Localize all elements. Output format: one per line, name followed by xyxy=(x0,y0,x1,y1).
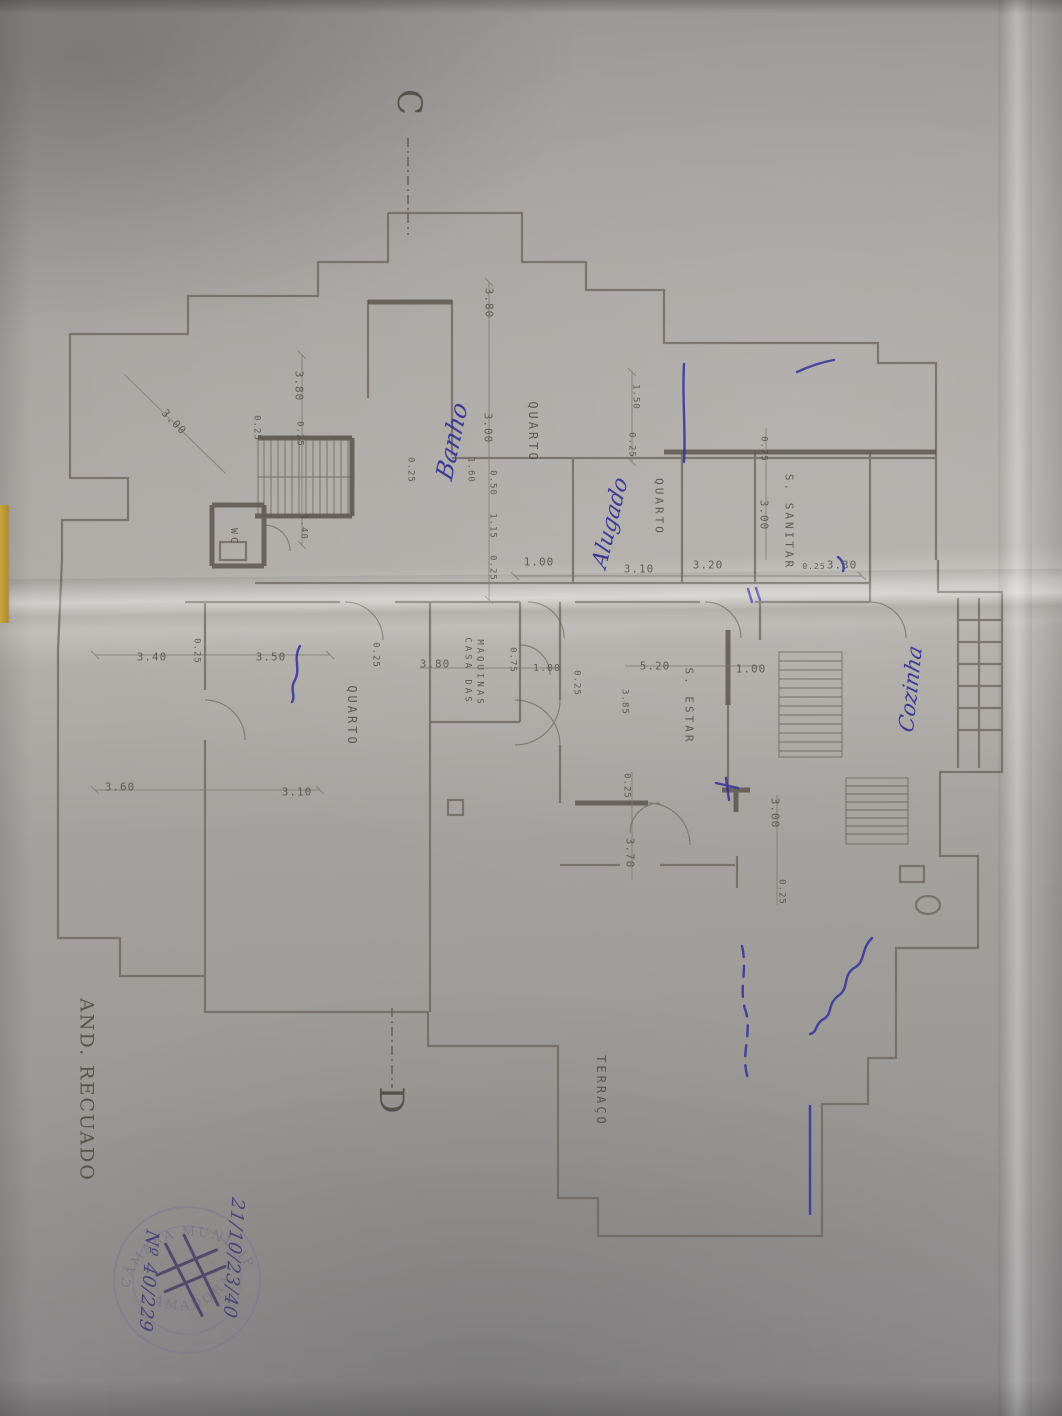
room-label-terraco: TERRAÇO xyxy=(595,1055,607,1127)
dim-0-75-b: 0.75 xyxy=(508,647,517,673)
undersheet-table xyxy=(22,1288,130,1416)
room-label-estar: S. ESTAR xyxy=(684,668,695,745)
dim-5-20: 5.20 xyxy=(640,661,671,672)
walls-thin xyxy=(58,213,1002,1236)
dim-1-50: 1.50 xyxy=(631,384,640,410)
room-label-maquinas: MÁQUINAS xyxy=(475,639,484,706)
room-label-quarto-2: QUARTO xyxy=(654,478,665,536)
ink-scribble-illegible xyxy=(810,938,872,1034)
dim-3-10-b: 3.10 xyxy=(282,787,313,798)
dim-3-00-a: 3.00 xyxy=(483,413,494,444)
ink-scribble-small xyxy=(292,646,300,702)
dim-1-60: 1.60 xyxy=(466,457,475,483)
dim-0-25-c: 0.25 xyxy=(406,457,415,483)
dim-0-25-i: 0.25 xyxy=(572,670,581,696)
municipal-stamp: CÂMARA MUNICIPAL AMADORA xyxy=(99,1192,276,1369)
dim-0-25-h: 0.25 xyxy=(371,642,380,668)
dim-3-85: 3.85 xyxy=(620,689,629,715)
floor-note: AND. RECUADO xyxy=(77,998,96,1182)
room-label-wc: WC xyxy=(228,528,238,546)
ink-stroke-wall xyxy=(683,364,684,462)
section-line-cd xyxy=(392,138,408,1088)
dim-1-00-c: 1.00 xyxy=(736,664,767,675)
room-label-quarto-1: QUARTO xyxy=(527,401,539,462)
dim-3-10-a: 3.10 xyxy=(624,564,655,575)
dim-3-20: 3.20 xyxy=(693,560,724,571)
photographed-floorplan-sheet: CÂMARA MUNICIPAL AMADORA 3.803.003.800.2… xyxy=(0,0,1062,1416)
dim-0-25-k: 0.25 xyxy=(777,879,786,905)
dim-0-25-d: 0.25 xyxy=(488,555,497,581)
room-label-casa-das: CASA DAS xyxy=(463,637,472,704)
dim-0-25-f: 0.25 xyxy=(802,563,825,571)
room-label-sanitar: S. SANITAR xyxy=(784,474,795,570)
hatch-areas xyxy=(258,438,908,844)
dim-3-70: 3.70 xyxy=(625,838,636,869)
ink-dashed-line xyxy=(742,946,748,1078)
room-label-quarto-3: QUARTO xyxy=(346,685,358,746)
dim-3-60: 3.60 xyxy=(105,782,136,793)
dim-3-80-a: 3.80 xyxy=(484,288,495,319)
section-letter-d: D xyxy=(374,1086,408,1115)
dim-1-00-b: 1.00 xyxy=(533,664,561,674)
dim-3-80-b: 3.80 xyxy=(294,371,305,402)
dim-3-00-c: 3.00 xyxy=(770,798,781,829)
dim-0-25-a: 0.25 xyxy=(295,421,304,447)
dim-1-15: 1.15 xyxy=(488,513,497,539)
dim-0-25-e: 0.25 xyxy=(627,432,636,458)
ink-stroke-top xyxy=(797,360,834,372)
dim-3-30: 3.30 xyxy=(827,560,858,571)
dim-3-80-c: 3.80 xyxy=(420,659,451,670)
dim-0-25-g: 0.25 xyxy=(192,638,201,664)
dim-3-00-b: 3.00 xyxy=(759,500,770,531)
dim-3-50: 3.50 xyxy=(256,652,287,663)
dim-0-25-b: 0.25 xyxy=(252,415,261,441)
section-letter-c: C xyxy=(392,89,426,117)
dim-1-00-a: 1.00 xyxy=(524,557,555,568)
dim-0-75-a: 0.75 xyxy=(759,436,768,462)
dim-0-25-j: 0.25 xyxy=(622,773,631,799)
dim-1-40: 1.40 xyxy=(299,514,308,540)
dim-3-40: 3.40 xyxy=(137,652,168,663)
dim-0-50: 0.50 xyxy=(488,470,497,496)
